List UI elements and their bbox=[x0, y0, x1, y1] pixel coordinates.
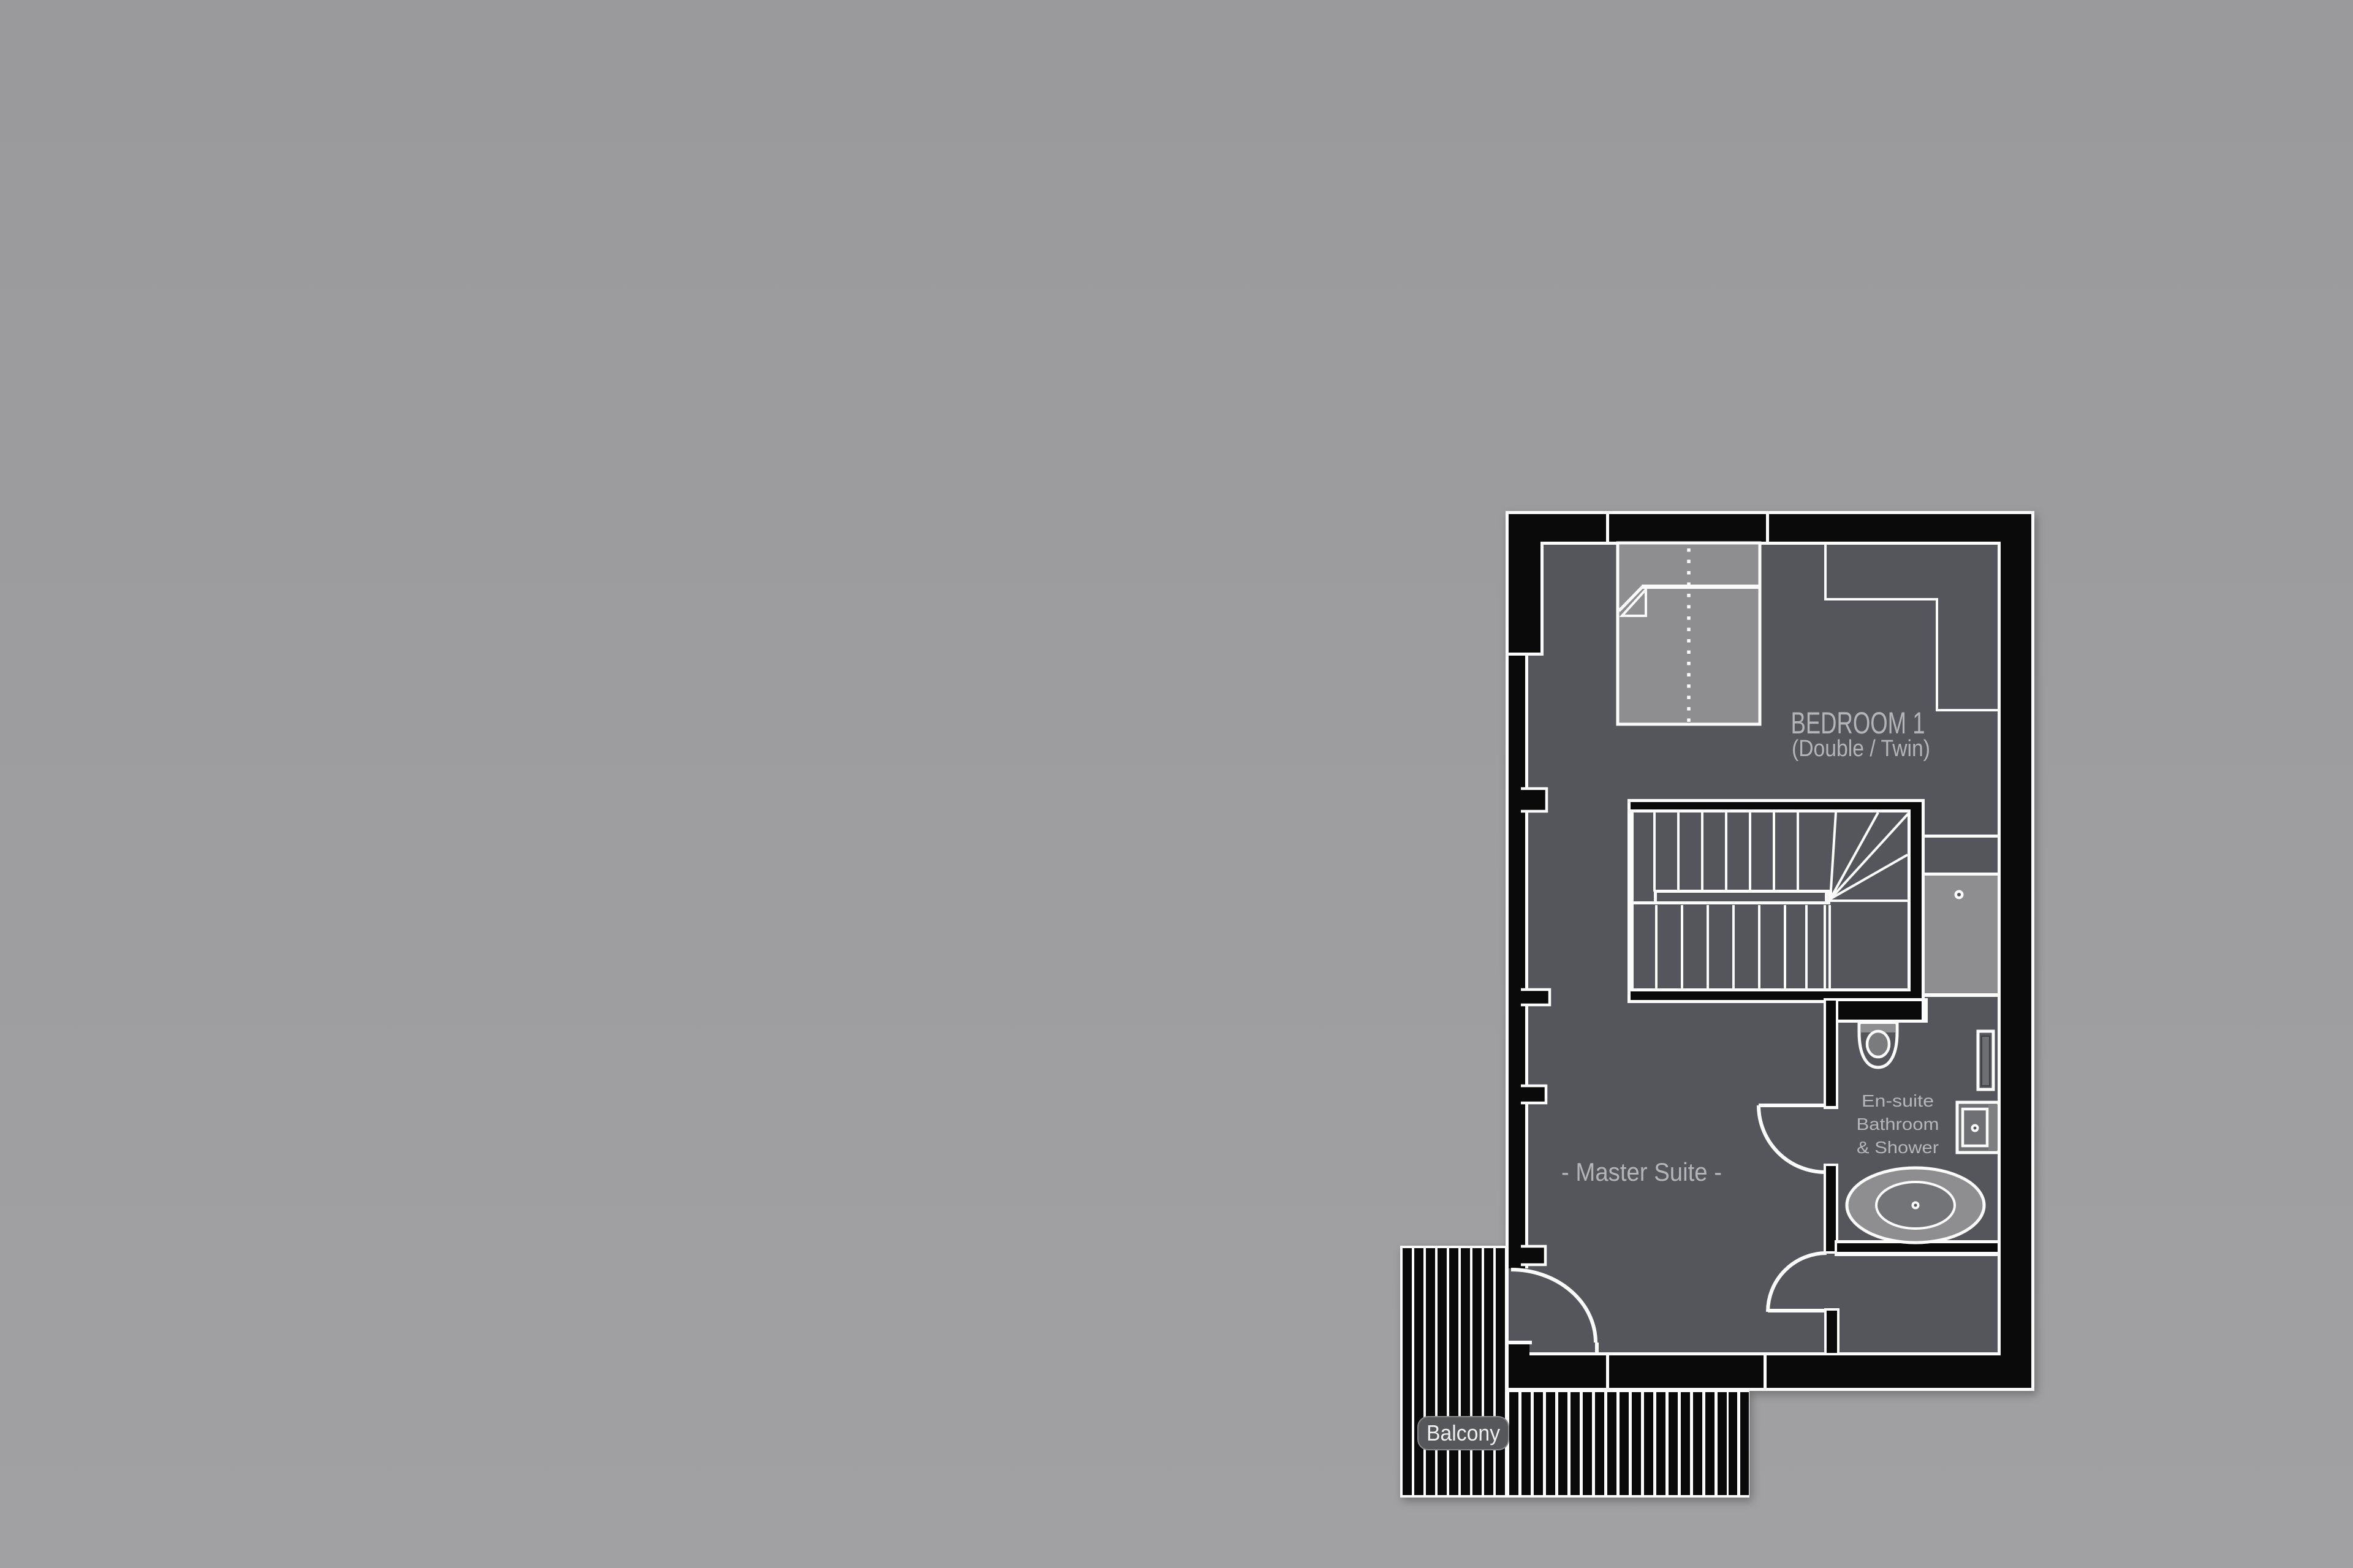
svg-text:- Master Suite -: - Master Suite - bbox=[1561, 1157, 1722, 1186]
svg-text:Balcony: Balcony bbox=[1427, 1420, 1500, 1445]
svg-text:(Double / Twin): (Double / Twin) bbox=[1792, 736, 1930, 762]
svg-text:& Shower: & Shower bbox=[1857, 1138, 1939, 1157]
svg-text:BEDROOM 1: BEDROOM 1 bbox=[1791, 706, 1925, 740]
svg-text:Bathroom: Bathroom bbox=[1857, 1115, 1939, 1134]
svg-text:En-suite: En-suite bbox=[1862, 1091, 1934, 1110]
